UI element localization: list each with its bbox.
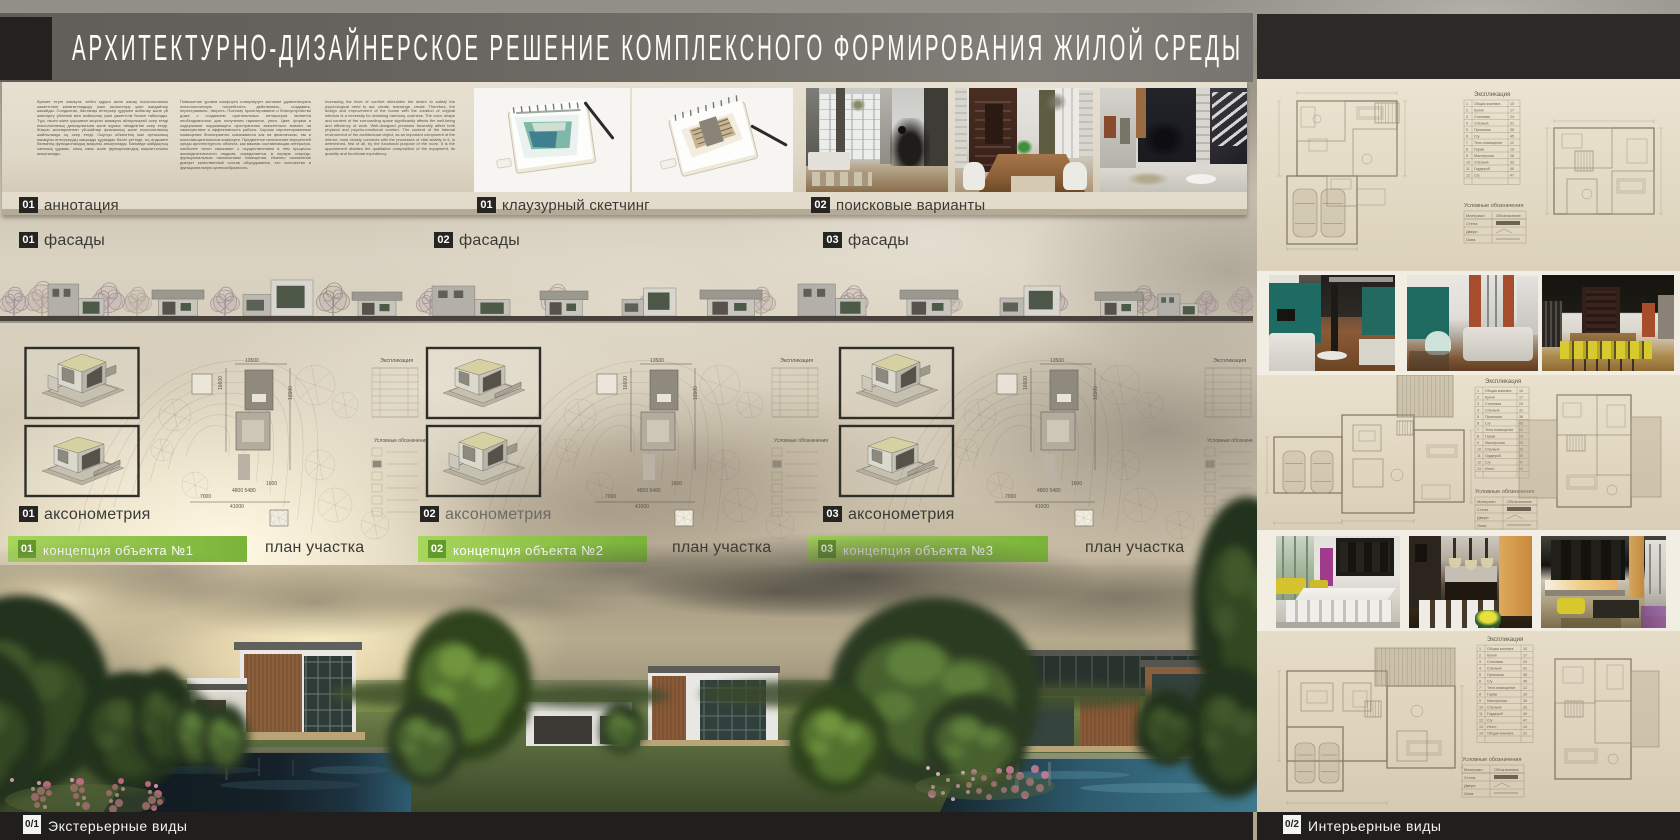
svg-text:10: 10 bbox=[1466, 161, 1470, 165]
svg-text:Гараж: Гараж bbox=[1485, 435, 1496, 439]
svg-text:Стена: Стена bbox=[1466, 221, 1478, 226]
svg-text:16600: 16600 bbox=[218, 376, 224, 390]
svg-text:16500: 16500 bbox=[1093, 386, 1099, 400]
svg-text:Кухня: Кухня bbox=[1485, 396, 1495, 400]
svg-text:14: 14 bbox=[1523, 725, 1527, 729]
svg-text:6: 6 bbox=[1466, 135, 1468, 139]
svg-text:16500: 16500 bbox=[288, 386, 294, 400]
svg-text:24: 24 bbox=[1510, 115, 1514, 119]
svg-text:2: 2 bbox=[1479, 654, 1481, 658]
svg-text:16500: 16500 bbox=[693, 386, 699, 400]
svg-text:Обозначение: Обозначение bbox=[1496, 213, 1522, 218]
svg-text:С/у: С/у bbox=[1485, 461, 1491, 465]
svg-text:Экспликация: Экспликация bbox=[380, 358, 413, 364]
svg-text:4: 4 bbox=[1466, 122, 1468, 126]
svg-text:Двери: Двери bbox=[1466, 229, 1477, 234]
svg-text:Кухня: Кухня bbox=[1487, 654, 1497, 658]
svg-text:Гараж: Гараж bbox=[1474, 148, 1485, 152]
svg-text:16600: 16600 bbox=[623, 376, 629, 390]
svg-text:10: 10 bbox=[1523, 647, 1527, 651]
svg-text:13: 13 bbox=[1479, 725, 1483, 729]
svg-text:4: 4 bbox=[1479, 667, 1481, 671]
svg-text:С/у: С/у bbox=[1487, 680, 1493, 684]
svg-text:17: 17 bbox=[1519, 396, 1523, 400]
svg-text:1: 1 bbox=[1477, 389, 1479, 393]
svg-text:3: 3 bbox=[1477, 402, 1479, 406]
svg-text:Экспликация: Экспликация bbox=[1213, 358, 1246, 364]
svg-text:45: 45 bbox=[1510, 135, 1514, 139]
svg-text:Спальня: Спальня bbox=[1487, 706, 1501, 710]
svg-text:2: 2 bbox=[1466, 109, 1468, 113]
svg-text:Прихожая: Прихожая bbox=[1487, 673, 1504, 677]
svg-text:1: 1 bbox=[1466, 102, 1468, 106]
svg-text:Столовая: Столовая bbox=[1487, 660, 1503, 664]
svg-text:17: 17 bbox=[1510, 109, 1514, 113]
svg-text:Столовая: Столовая bbox=[1485, 402, 1501, 406]
svg-text:26: 26 bbox=[1510, 154, 1514, 158]
svg-text:12: 12 bbox=[1466, 174, 1470, 178]
svg-text:33: 33 bbox=[1510, 161, 1514, 165]
svg-text:Столовая: Столовая bbox=[1474, 115, 1490, 119]
svg-text:Мастерская: Мастерская bbox=[1474, 154, 1494, 158]
svg-text:6: 6 bbox=[1479, 680, 1481, 684]
svg-text:24: 24 bbox=[1519, 402, 1523, 406]
svg-text:Тепл.помещение: Тепл.помещение bbox=[1474, 141, 1502, 145]
svg-text:11: 11 bbox=[1466, 167, 1470, 171]
svg-text:5: 5 bbox=[1477, 415, 1479, 419]
svg-text:16600: 16600 bbox=[1023, 376, 1029, 390]
svg-text:11: 11 bbox=[1477, 454, 1481, 458]
svg-text:Материал: Материал bbox=[1464, 767, 1483, 772]
svg-text:Стена: Стена bbox=[1477, 507, 1489, 512]
svg-text:Итого: Итого bbox=[1487, 725, 1496, 729]
svg-text:5: 5 bbox=[1479, 673, 1481, 677]
svg-text:9: 9 bbox=[1466, 154, 1468, 158]
svg-text:Экспликация: Экспликация bbox=[780, 358, 813, 364]
svg-text:8: 8 bbox=[1479, 693, 1481, 697]
svg-text:38: 38 bbox=[1519, 415, 1523, 419]
svg-text:Условные обозначения: Условные обозначения bbox=[774, 438, 828, 444]
svg-text:10: 10 bbox=[1477, 448, 1481, 452]
svg-text:7: 7 bbox=[1466, 141, 1468, 145]
svg-text:12: 12 bbox=[1479, 719, 1483, 723]
svg-text:10: 10 bbox=[1479, 706, 1483, 710]
svg-text:Обозначение: Обозначение bbox=[1494, 767, 1520, 772]
svg-text:Общая комната: Общая комната bbox=[1487, 732, 1513, 736]
svg-text:Спальня: Спальня bbox=[1485, 448, 1499, 452]
svg-text:С/у: С/у bbox=[1485, 422, 1491, 426]
svg-text:Прихожая: Прихожая bbox=[1485, 415, 1502, 419]
svg-text:4: 4 bbox=[1477, 409, 1479, 413]
svg-text:8: 8 bbox=[1466, 148, 1468, 152]
svg-text:Кухня: Кухня bbox=[1474, 109, 1484, 113]
svg-text:21: 21 bbox=[1523, 732, 1527, 736]
svg-text:38: 38 bbox=[1523, 673, 1527, 677]
svg-text:26: 26 bbox=[1523, 699, 1527, 703]
svg-text:Общая комната: Общая комната bbox=[1485, 389, 1511, 393]
svg-text:Спальня: Спальня bbox=[1474, 122, 1488, 126]
svg-text:Условные обозначения: Условные обозначения bbox=[374, 438, 428, 444]
svg-text:Гардероб: Гардероб bbox=[1487, 712, 1503, 716]
svg-text:С/у: С/у bbox=[1474, 174, 1480, 178]
svg-text:Тепл.помещение: Тепл.помещение bbox=[1485, 428, 1513, 432]
svg-text:2: 2 bbox=[1477, 396, 1479, 400]
svg-text:Обозначение: Обозначение bbox=[1507, 499, 1533, 504]
svg-text:Экспликация: Экспликация bbox=[1485, 379, 1521, 385]
svg-text:12: 12 bbox=[1523, 686, 1527, 690]
svg-text:8: 8 bbox=[1477, 435, 1479, 439]
svg-text:3: 3 bbox=[1466, 115, 1468, 119]
svg-text:13500: 13500 bbox=[245, 358, 259, 364]
svg-text:Двери: Двери bbox=[1477, 515, 1488, 520]
svg-text:Материал: Материал bbox=[1466, 213, 1485, 218]
svg-text:5: 5 bbox=[1466, 128, 1468, 132]
svg-text:7: 7 bbox=[1479, 686, 1481, 690]
svg-text:24: 24 bbox=[1523, 660, 1527, 664]
svg-text:17: 17 bbox=[1523, 654, 1527, 658]
svg-text:Условные обозначения: Условные обозначения bbox=[1464, 203, 1523, 209]
svg-text:Прихожая: Прихожая bbox=[1474, 128, 1491, 132]
svg-text:Окна: Окна bbox=[1477, 523, 1487, 528]
svg-text:Стена: Стена bbox=[1464, 775, 1476, 780]
svg-text:19: 19 bbox=[1523, 693, 1527, 697]
svg-text:Общая комната: Общая комната bbox=[1487, 647, 1513, 651]
svg-text:31: 31 bbox=[1510, 122, 1514, 126]
svg-text:12: 12 bbox=[1477, 461, 1481, 465]
svg-text:Итого: Итого bbox=[1485, 467, 1494, 471]
svg-text:Условные обозначения: Условные обозначения bbox=[1207, 438, 1253, 444]
svg-text:С/у: С/у bbox=[1487, 719, 1493, 723]
svg-text:38: 38 bbox=[1510, 128, 1514, 132]
svg-text:9: 9 bbox=[1477, 441, 1479, 445]
svg-text:19: 19 bbox=[1510, 148, 1514, 152]
svg-text:Спальня: Спальня bbox=[1474, 161, 1488, 165]
svg-text:31: 31 bbox=[1519, 409, 1523, 413]
svg-text:11: 11 bbox=[1479, 712, 1483, 716]
svg-text:Материал: Материал bbox=[1477, 499, 1496, 504]
svg-text:31: 31 bbox=[1523, 667, 1527, 671]
svg-text:Гардероб: Гардероб bbox=[1485, 454, 1501, 458]
svg-text:1: 1 bbox=[1479, 647, 1481, 651]
svg-text:12: 12 bbox=[1510, 141, 1514, 145]
svg-text:10: 10 bbox=[1519, 389, 1523, 393]
svg-text:13: 13 bbox=[1477, 467, 1481, 471]
svg-text:33: 33 bbox=[1523, 706, 1527, 710]
svg-text:Экспликация: Экспликация bbox=[1474, 92, 1510, 98]
svg-text:Двери: Двери bbox=[1464, 783, 1475, 788]
svg-text:3: 3 bbox=[1479, 660, 1481, 664]
svg-text:Мастерская: Мастерская bbox=[1485, 441, 1505, 445]
svg-text:Спальня: Спальня bbox=[1487, 667, 1501, 671]
svg-text:47: 47 bbox=[1510, 174, 1514, 178]
svg-text:Условные обозначения: Условные обозначения bbox=[1462, 757, 1521, 763]
svg-text:40: 40 bbox=[1523, 712, 1527, 716]
svg-text:40: 40 bbox=[1510, 167, 1514, 171]
svg-text:Мастерская: Мастерская bbox=[1487, 699, 1507, 703]
svg-text:Окна: Окна bbox=[1464, 791, 1474, 796]
svg-text:6: 6 bbox=[1477, 422, 1479, 426]
svg-text:9: 9 bbox=[1479, 699, 1481, 703]
svg-text:13500: 13500 bbox=[1050, 358, 1064, 364]
svg-text:13500: 13500 bbox=[650, 358, 664, 364]
svg-text:14: 14 bbox=[1479, 732, 1483, 736]
svg-text:Окна: Окна bbox=[1466, 237, 1476, 242]
svg-text:Гардероб: Гардероб bbox=[1474, 167, 1490, 171]
svg-text:Экспликация: Экспликация bbox=[1487, 637, 1523, 643]
svg-text:Спальня: Спальня bbox=[1485, 409, 1499, 413]
svg-text:Тепл.помещение: Тепл.помещение bbox=[1487, 686, 1515, 690]
svg-text:7: 7 bbox=[1477, 428, 1479, 432]
svg-text:С/у: С/у bbox=[1474, 135, 1480, 139]
svg-text:Гараж: Гараж bbox=[1487, 693, 1498, 697]
svg-text:10: 10 bbox=[1510, 102, 1514, 106]
svg-text:45: 45 bbox=[1523, 680, 1527, 684]
svg-text:Общая комната: Общая комната bbox=[1474, 102, 1500, 106]
svg-text:47: 47 bbox=[1523, 719, 1527, 723]
